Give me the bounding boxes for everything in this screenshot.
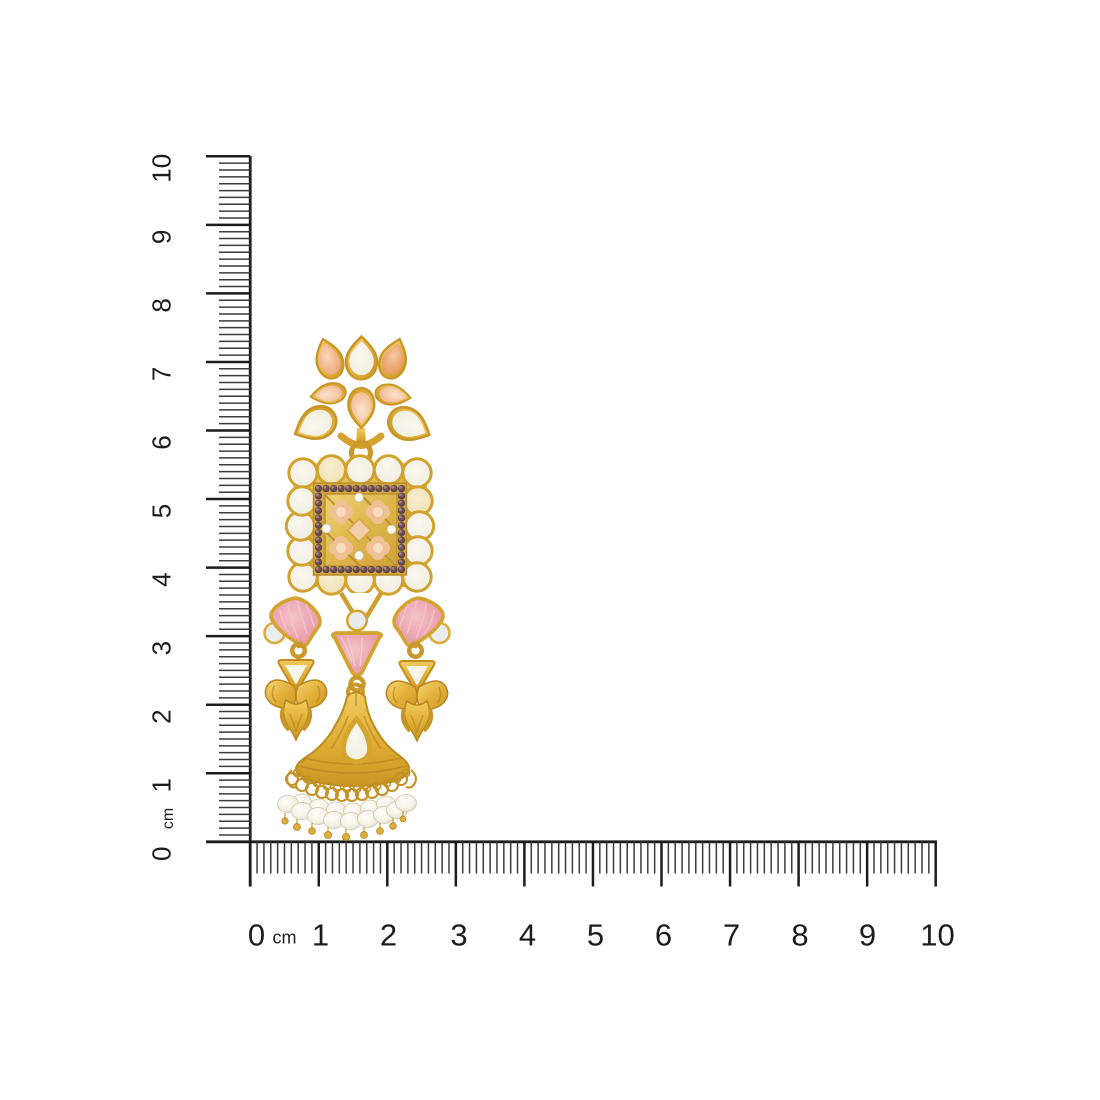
svg-text:10: 10	[147, 154, 177, 183]
svg-text:0: 0	[147, 847, 177, 861]
svg-text:1: 1	[147, 778, 177, 792]
svg-text:3: 3	[450, 918, 467, 953]
svg-text:7: 7	[723, 918, 740, 953]
svg-text:0: 0	[248, 918, 265, 953]
svg-text:9: 9	[147, 230, 177, 244]
svg-text:3: 3	[147, 641, 177, 655]
svg-text:9: 9	[859, 918, 876, 953]
svg-text:10: 10	[920, 918, 954, 953]
svg-text:2: 2	[380, 918, 397, 953]
svg-text:7: 7	[147, 367, 177, 381]
svg-text:8: 8	[147, 298, 177, 312]
svg-text:8: 8	[791, 918, 808, 953]
svg-text:4: 4	[147, 572, 177, 586]
svg-text:2: 2	[147, 709, 177, 723]
svg-text:6: 6	[655, 918, 672, 953]
svg-text:1: 1	[312, 918, 329, 953]
svg-text:4: 4	[519, 918, 536, 953]
svg-text:cm: cm	[160, 808, 177, 829]
svg-text:cm: cm	[273, 928, 297, 948]
svg-text:5: 5	[147, 504, 177, 518]
svg-text:6: 6	[147, 435, 177, 449]
svg-text:5: 5	[587, 918, 604, 953]
